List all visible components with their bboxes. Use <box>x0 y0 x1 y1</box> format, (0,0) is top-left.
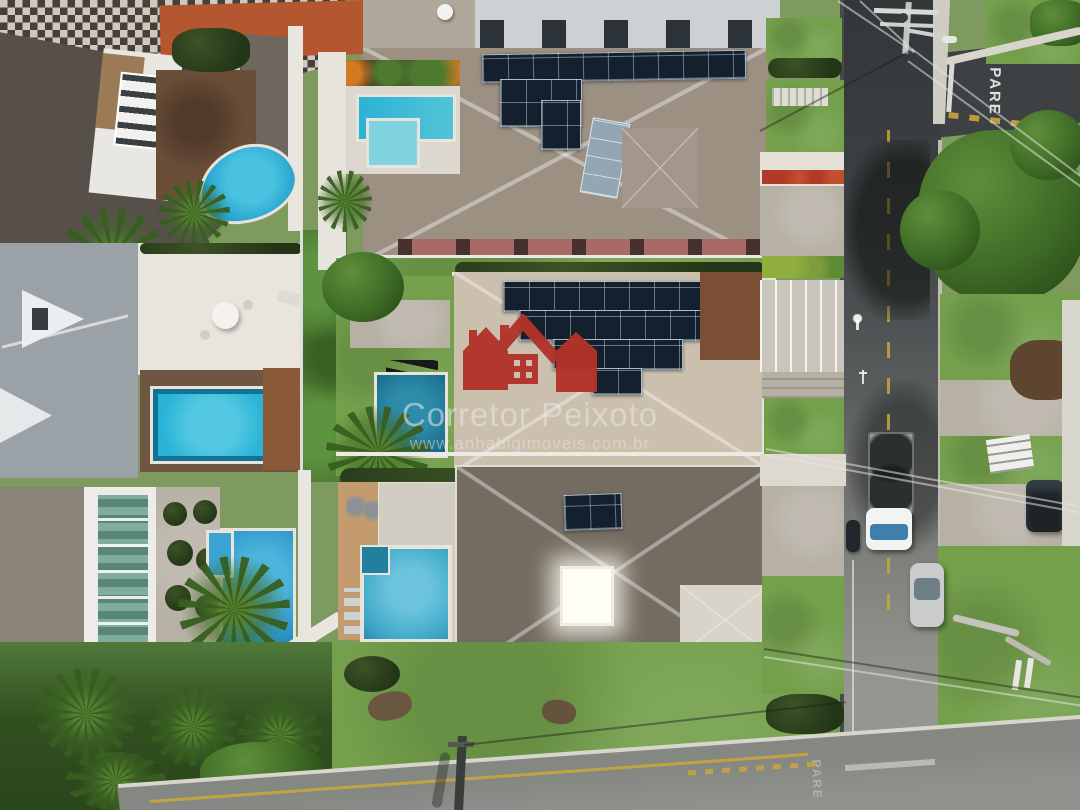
gable-window <box>32 308 48 330</box>
small-gray-roof <box>363 0 475 52</box>
round-patio-table <box>212 302 239 329</box>
blue-gray-roof-house <box>0 243 138 478</box>
hedge-top-left <box>172 28 250 72</box>
patio-chair <box>243 300 253 310</box>
facade-window-slots <box>480 20 770 48</box>
watermark: Corretor Peixoto www.anhabigimoveis.com.… <box>360 310 700 460</box>
watermark-website-text: www.anhabigimoveis.com.br <box>360 434 700 454</box>
white-wall-line <box>336 255 778 258</box>
red-houses-logo <box>460 314 600 394</box>
skylight <box>560 566 614 626</box>
potted-shrub <box>167 540 193 566</box>
white-gate-fence <box>986 434 1034 474</box>
frontage-lawn <box>764 398 844 454</box>
l-pool-shallow-arm <box>366 118 420 168</box>
frontage-hedge <box>768 58 842 78</box>
frontage-lawn <box>762 576 844 694</box>
driveway-pad <box>760 186 844 256</box>
right-building-edge <box>1062 300 1080 562</box>
brown-patio-house-b <box>700 272 762 360</box>
solar-panels-house-c <box>563 493 622 531</box>
silver-car-windshield <box>914 578 940 600</box>
transformer <box>899 13 908 22</box>
potted-shrub <box>163 502 187 526</box>
hot-tub-corner <box>362 547 390 575</box>
frontage-steps <box>762 372 844 398</box>
solar-b-row1 <box>503 281 705 312</box>
watermark-brand-text: Corretor Peixoto <box>360 396 700 434</box>
flower-bed-red <box>762 170 844 184</box>
solar-panel-pair <box>541 100 581 150</box>
lane-edge-white <box>852 560 854 760</box>
rect-pool-mid-left <box>153 389 273 461</box>
house-a-pyramid-roof <box>622 128 698 208</box>
palm-cluster <box>36 668 136 760</box>
striped-driveway <box>760 280 844 372</box>
satellite-dish <box>437 4 453 20</box>
frontage-bush <box>766 694 844 734</box>
frontage-lawn <box>766 18 842 62</box>
frontage-driveway <box>762 486 844 576</box>
garden-fern <box>318 170 372 232</box>
planter-row <box>140 243 302 254</box>
white-terrace <box>760 454 846 486</box>
pare-road-marking-faint: PARE <box>777 759 825 807</box>
truck-windshield <box>870 524 908 540</box>
motorcycle <box>846 520 860 552</box>
bush <box>344 656 400 692</box>
large-street-tree-lobe <box>900 190 980 270</box>
road-symbol <box>858 370 868 384</box>
palm-tree <box>158 180 230 246</box>
white-side-wall <box>318 52 346 270</box>
potted-shrub <box>193 500 217 524</box>
planter-flowers <box>330 60 460 86</box>
street-lamp-head <box>942 36 957 43</box>
yellow-green-shrubs <box>762 256 844 278</box>
aerial-photo: PARE PARE <box>0 0 1080 810</box>
white-garden-wall <box>288 26 303 231</box>
wood-deck <box>263 368 303 470</box>
patio-chair <box>200 330 210 340</box>
